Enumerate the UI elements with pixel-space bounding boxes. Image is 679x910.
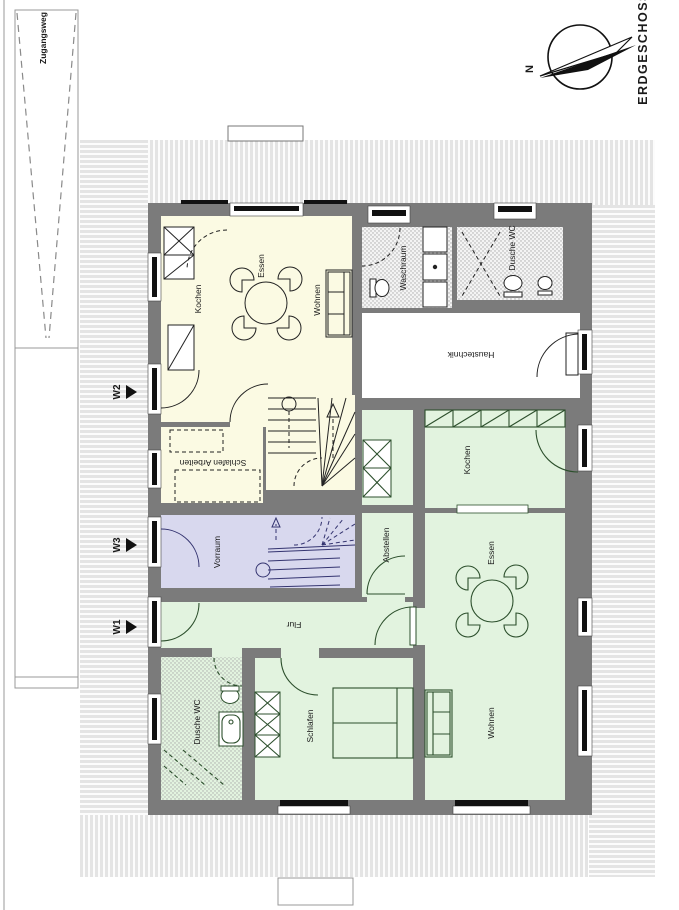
label-schlafen: Schlafen	[305, 709, 315, 742]
label-w1: W1	[112, 619, 123, 634]
door-opening-flur-dusche	[212, 648, 242, 657]
floor-title: ERDGESCHOSS	[636, 0, 650, 105]
label-w2: W2	[112, 384, 123, 399]
label-haustechnik: Haustechnik	[447, 350, 495, 360]
window-left-2	[148, 450, 161, 488]
washer-3	[423, 282, 447, 307]
door-left-w3	[148, 517, 161, 567]
window-left-1	[148, 253, 161, 301]
washer-1	[423, 227, 447, 252]
door-right-haustechnik	[578, 330, 592, 374]
site-walkway: Zugangsweg	[15, 10, 78, 688]
toilet-waschraum	[370, 279, 389, 297]
door-right-kochen	[578, 425, 592, 471]
label-flur: Flur	[287, 620, 302, 630]
kitchen-passthrough	[457, 505, 528, 513]
window-bottom-schlafen	[278, 800, 350, 814]
skylight-top	[228, 126, 303, 141]
window-top-living	[230, 203, 303, 216]
label-vorraum: Vorraum	[212, 536, 222, 568]
door-opening-flur-schlafen	[281, 648, 319, 658]
label-schlafen-arbeiten: Schlafen Arbeiten	[179, 458, 246, 468]
label-dusche-wc-ground: Dusche WC	[192, 699, 202, 744]
floor-plan-sheet: Zugangsweg	[0, 0, 679, 910]
label-wohnen-ground: Wohnen	[486, 707, 496, 739]
label-w3: W3	[112, 537, 123, 552]
wardrobe	[255, 692, 280, 757]
hatch-band-bottom	[80, 815, 588, 877]
door-opening-abstellen	[367, 597, 405, 602]
label-waschraum: Waschraum	[398, 245, 408, 290]
window-top-waschraum	[368, 206, 410, 223]
door-opening-schlafen-arbeiten	[230, 422, 268, 427]
tall-cupboard-nook	[363, 440, 391, 497]
label-essen-upper: Essen	[256, 254, 266, 278]
door-left-w2	[148, 364, 161, 414]
window-right-2	[578, 686, 592, 756]
window-right-1	[578, 598, 592, 636]
room-kochen-ground	[425, 410, 565, 508]
hatch-band-top	[148, 140, 655, 205]
label-essen-ground: Essen	[486, 541, 496, 565]
window-top-dusche	[494, 203, 536, 219]
window-bottom-wohnen	[453, 800, 530, 814]
label-kochen-upper: Kochen	[193, 284, 203, 313]
label-kochen-ground: Kochen	[462, 445, 472, 474]
label-dusche-wc-top: Dusche WC	[507, 225, 517, 270]
north-compass-icon: N	[524, 25, 636, 89]
label-abstellen: Abstellen	[381, 527, 391, 562]
door-leaf-haustechnik	[566, 333, 578, 375]
step-bottom	[278, 878, 353, 905]
door-leaf-flur-essen	[410, 607, 416, 645]
walkway-label: Zugangsweg	[38, 12, 48, 64]
door-left-w1	[148, 597, 161, 647]
needle-filled	[540, 45, 636, 78]
label-wohnen-upper: Wohnen	[312, 284, 322, 316]
north-letter: N	[524, 65, 536, 73]
hatch-band-right	[589, 205, 655, 877]
walkway-edge-dashed-right	[49, 13, 76, 338]
hatch-band-left	[80, 140, 148, 815]
floor-plan-drawing: Zugangsweg	[0, 0, 679, 910]
window-left-3	[148, 694, 161, 744]
